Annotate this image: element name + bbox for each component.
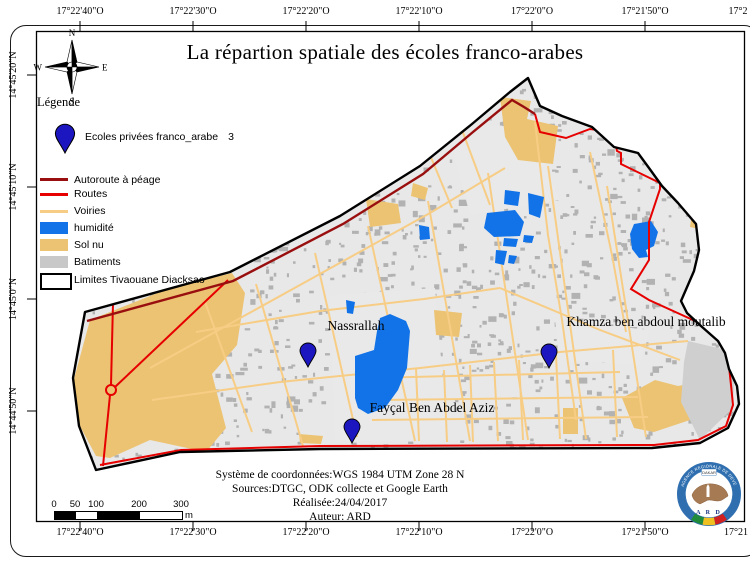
building — [266, 122, 268, 124]
building — [141, 239, 143, 243]
building — [392, 451, 395, 454]
legend-item-label: humidité — [74, 222, 114, 234]
legend-item-label: Sol nu — [74, 239, 104, 251]
building — [480, 285, 483, 289]
building — [472, 270, 475, 274]
building — [408, 442, 413, 444]
building — [230, 459, 235, 463]
building — [513, 302, 516, 306]
building — [269, 430, 272, 433]
building — [129, 286, 134, 290]
building — [535, 407, 540, 413]
building — [613, 188, 616, 190]
building — [627, 136, 633, 138]
building — [385, 287, 389, 290]
building — [290, 131, 294, 135]
building — [462, 226, 464, 229]
building — [448, 306, 450, 308]
building — [382, 85, 385, 89]
building — [588, 438, 590, 442]
building — [505, 270, 508, 274]
building — [200, 103, 204, 107]
building — [405, 233, 408, 236]
building — [551, 115, 554, 119]
building — [736, 378, 741, 381]
building — [247, 397, 252, 400]
building — [91, 107, 99, 110]
building — [184, 190, 187, 192]
building — [716, 232, 720, 234]
building — [358, 259, 363, 264]
building — [723, 221, 729, 224]
building — [209, 240, 212, 243]
building — [202, 268, 205, 272]
building — [733, 308, 738, 311]
building — [691, 337, 695, 341]
building — [156, 105, 158, 109]
building — [222, 167, 227, 172]
building — [178, 197, 182, 201]
building — [541, 380, 543, 383]
building — [536, 363, 544, 369]
building — [113, 155, 116, 159]
building — [399, 200, 406, 206]
building — [256, 242, 260, 246]
building — [270, 277, 274, 281]
building — [205, 205, 210, 207]
building — [395, 148, 399, 150]
building — [237, 435, 240, 437]
building — [178, 186, 182, 190]
building — [639, 175, 642, 179]
ard-logo: AGENCE REGIONALE DE DEVELOPPEMENT A R D … — [676, 459, 742, 529]
building — [112, 118, 114, 122]
building — [75, 86, 79, 89]
building — [705, 444, 710, 448]
building — [628, 252, 631, 254]
building — [182, 152, 188, 156]
building — [517, 286, 520, 289]
building — [304, 248, 307, 251]
building — [617, 242, 621, 245]
building — [651, 472, 653, 477]
map-title: La répartion spatiale des écoles franco-… — [150, 40, 620, 65]
building — [727, 225, 731, 228]
building — [734, 229, 736, 231]
building — [385, 232, 390, 235]
building — [480, 325, 482, 328]
building — [697, 182, 702, 185]
building — [647, 118, 651, 122]
building — [613, 213, 616, 216]
building — [77, 318, 80, 321]
building — [433, 133, 438, 136]
scale-bar-unit: m — [185, 510, 193, 521]
building — [348, 119, 352, 122]
building — [599, 450, 604, 453]
building — [171, 193, 174, 197]
building — [243, 182, 247, 184]
building — [237, 195, 243, 201]
building — [292, 218, 295, 222]
building — [418, 255, 420, 258]
building — [330, 95, 335, 98]
building — [160, 165, 165, 168]
building — [102, 114, 107, 117]
building — [411, 78, 416, 81]
legend-swatch-rect — [40, 239, 68, 251]
building — [580, 270, 585, 273]
credits-line: Réalisée:24/04/2017 — [130, 496, 550, 510]
building — [672, 360, 677, 364]
building — [128, 115, 136, 120]
building — [84, 94, 88, 97]
building — [590, 110, 593, 114]
building — [325, 353, 330, 355]
building — [213, 239, 215, 243]
building — [109, 88, 113, 92]
building — [472, 286, 477, 289]
building — [719, 231, 723, 237]
building — [331, 209, 335, 212]
building — [242, 158, 247, 162]
building — [664, 289, 667, 292]
map-layout-page: NassrallahFayçal Ben Abdel AzizKhamza be… — [0, 0, 750, 561]
building — [415, 224, 418, 226]
building — [489, 334, 494, 336]
building — [266, 269, 269, 274]
coord-label-bottom: 17°22'30"O — [158, 527, 228, 538]
building — [265, 429, 270, 434]
building — [695, 140, 697, 143]
building — [144, 122, 147, 126]
building — [598, 441, 601, 443]
building — [587, 390, 592, 394]
building — [331, 127, 335, 130]
building — [261, 233, 264, 235]
building — [186, 176, 189, 179]
logo-lighthouse — [707, 487, 710, 497]
building — [489, 365, 493, 368]
building — [258, 118, 262, 122]
building — [472, 341, 477, 344]
building — [586, 119, 592, 123]
building — [482, 460, 485, 464]
building — [470, 89, 477, 94]
building — [294, 217, 300, 221]
building — [729, 280, 737, 287]
building — [584, 109, 588, 112]
building — [215, 247, 220, 251]
building — [597, 392, 602, 396]
building — [498, 343, 503, 345]
map-label: Khamza ben abdoul moutalib — [566, 314, 726, 329]
building — [249, 186, 253, 189]
building — [406, 128, 410, 132]
building — [550, 377, 554, 381]
building — [150, 153, 154, 157]
building — [596, 162, 600, 166]
building — [302, 375, 307, 378]
map-label: Fayçal Ben Abdel Aziz — [370, 400, 495, 415]
building — [461, 379, 466, 382]
building — [334, 169, 341, 176]
building — [596, 407, 601, 411]
building — [351, 129, 356, 131]
legend-swatch-rect — [40, 222, 68, 234]
building — [228, 262, 232, 264]
building — [336, 144, 340, 148]
building — [180, 189, 185, 193]
building — [70, 396, 74, 400]
building — [181, 165, 185, 167]
legend-item-label: Routes — [74, 188, 107, 200]
building — [321, 401, 326, 404]
building — [452, 122, 454, 124]
scale-bar-label: 100 — [88, 499, 104, 510]
building — [225, 442, 230, 446]
building — [324, 367, 329, 371]
humidite-area — [419, 225, 430, 240]
building — [72, 300, 77, 304]
building — [246, 85, 251, 87]
building — [144, 168, 149, 171]
building — [651, 150, 656, 152]
building — [276, 201, 278, 204]
building — [535, 256, 540, 259]
building — [621, 431, 623, 435]
building — [281, 414, 283, 418]
building — [140, 156, 145, 159]
building — [139, 230, 144, 233]
building — [171, 256, 180, 259]
building — [642, 280, 647, 283]
scale-bar-label: 50 — [70, 499, 81, 510]
building — [683, 158, 687, 161]
building — [182, 209, 185, 213]
building — [655, 468, 657, 471]
building — [283, 179, 291, 186]
building — [668, 141, 670, 145]
building — [612, 296, 616, 300]
building — [737, 158, 741, 162]
building — [248, 353, 252, 356]
building — [174, 116, 176, 118]
building — [189, 105, 194, 108]
building — [579, 181, 582, 184]
building — [692, 97, 696, 100]
coord-label-top: 17°2 — [703, 6, 750, 17]
building — [734, 306, 739, 310]
building — [685, 173, 690, 176]
building — [433, 130, 438, 134]
building — [571, 301, 576, 304]
building — [502, 86, 506, 90]
building — [738, 431, 743, 433]
building — [562, 121, 567, 125]
building — [215, 374, 220, 378]
building — [82, 155, 88, 158]
building — [404, 236, 407, 239]
scale-bar-body — [54, 511, 183, 520]
building — [200, 247, 202, 249]
building — [292, 219, 294, 223]
building — [244, 218, 249, 222]
building — [436, 86, 441, 89]
building — [572, 293, 581, 299]
building — [463, 263, 468, 265]
building — [277, 160, 280, 162]
building — [162, 285, 166, 288]
building — [656, 346, 662, 350]
building — [579, 378, 588, 384]
building — [187, 267, 191, 271]
building — [132, 120, 135, 124]
building — [227, 83, 232, 86]
building — [410, 268, 413, 270]
building — [602, 374, 605, 379]
building — [536, 349, 539, 351]
building — [524, 216, 527, 218]
building — [623, 391, 628, 394]
building — [287, 273, 289, 277]
building — [154, 208, 157, 210]
building — [575, 143, 578, 148]
scale-bar-segment — [55, 512, 76, 519]
building — [142, 461, 151, 467]
building — [264, 257, 270, 259]
building — [708, 156, 713, 159]
logo-flag-yellow — [703, 521, 714, 522]
building — [518, 268, 520, 271]
building — [295, 376, 297, 379]
building — [645, 352, 647, 355]
building — [149, 243, 153, 246]
building — [727, 313, 735, 320]
compass-letter-w: W — [34, 63, 43, 73]
building — [94, 100, 98, 102]
building — [420, 133, 423, 135]
building — [622, 179, 625, 183]
building — [272, 93, 277, 97]
coord-label-top: 17°21'50"O — [610, 6, 680, 17]
building — [455, 337, 458, 340]
building — [571, 99, 576, 103]
building — [588, 135, 592, 139]
building — [690, 146, 693, 148]
building — [360, 80, 364, 83]
building — [543, 451, 548, 454]
building — [616, 153, 620, 157]
building — [449, 110, 453, 112]
building — [275, 320, 278, 324]
building — [264, 406, 269, 409]
building — [446, 120, 450, 126]
building — [270, 350, 274, 353]
building — [149, 122, 152, 126]
building — [604, 412, 611, 416]
building — [739, 321, 748, 326]
building — [367, 171, 375, 175]
building — [729, 200, 732, 202]
building — [94, 169, 97, 172]
building — [466, 81, 475, 87]
building — [675, 84, 681, 87]
building — [287, 117, 292, 120]
building — [693, 86, 697, 90]
building — [512, 311, 515, 315]
building — [463, 280, 467, 283]
building — [250, 240, 254, 242]
building — [691, 103, 695, 107]
building — [630, 106, 632, 109]
building — [313, 92, 318, 95]
building — [352, 231, 359, 234]
building — [274, 77, 276, 81]
building — [653, 159, 658, 161]
building — [193, 113, 198, 117]
building — [428, 125, 431, 129]
building — [214, 111, 219, 114]
building — [533, 453, 537, 456]
building — [246, 172, 248, 175]
building — [146, 232, 149, 235]
building — [590, 225, 593, 229]
building — [704, 261, 707, 263]
building — [214, 97, 217, 101]
building — [374, 79, 379, 82]
building — [571, 206, 575, 208]
building — [294, 399, 300, 404]
building — [269, 191, 273, 195]
building — [640, 464, 643, 468]
building — [380, 458, 383, 462]
building — [596, 175, 601, 177]
building — [657, 122, 664, 129]
building — [252, 223, 255, 226]
building — [665, 292, 669, 296]
building — [94, 472, 96, 476]
building — [669, 215, 672, 217]
building — [193, 152, 196, 156]
building — [705, 142, 708, 144]
building — [431, 105, 434, 107]
building — [106, 118, 110, 121]
building — [226, 397, 233, 401]
building — [552, 472, 558, 476]
building — [612, 437, 616, 440]
building — [204, 208, 211, 213]
building — [243, 363, 247, 367]
building — [733, 145, 741, 150]
coord-label-left: 14°45'0"N — [8, 269, 20, 329]
building — [618, 409, 622, 411]
building — [721, 188, 725, 192]
building — [561, 298, 565, 300]
building — [193, 206, 197, 209]
building — [444, 269, 448, 273]
building — [638, 189, 641, 192]
logo-banner: DAKAR — [702, 470, 716, 475]
building — [655, 162, 661, 169]
building — [341, 245, 345, 248]
building — [295, 226, 299, 229]
building — [641, 99, 644, 102]
building — [557, 460, 561, 462]
building — [191, 260, 194, 263]
building — [728, 114, 732, 118]
building — [617, 419, 621, 424]
